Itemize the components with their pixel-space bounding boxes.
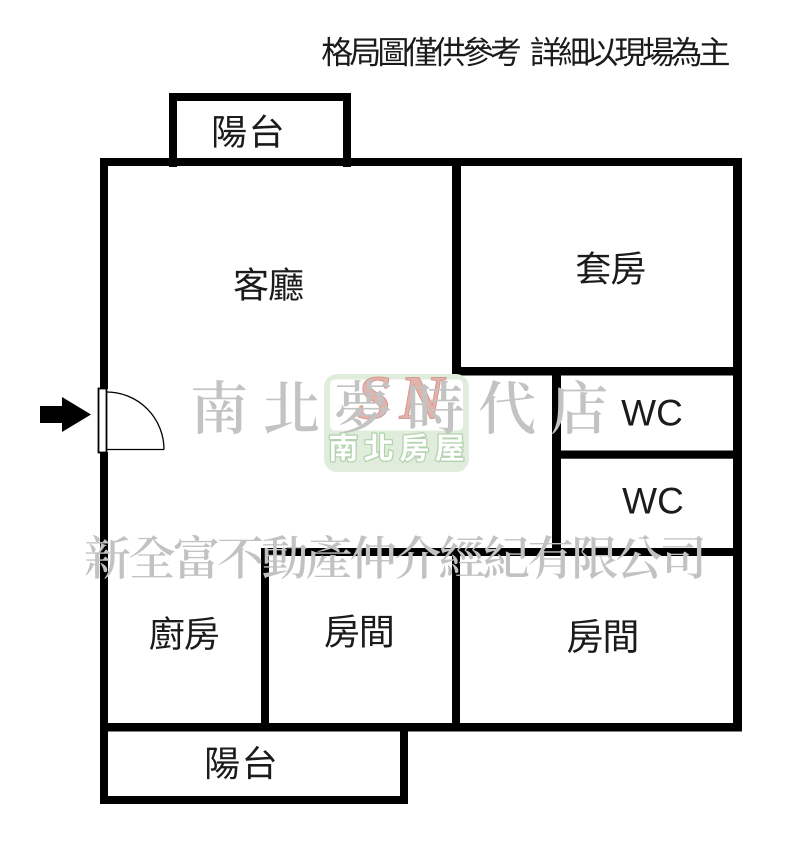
- svg-text:WC: WC: [622, 481, 684, 522]
- svg-text:WC: WC: [621, 393, 683, 434]
